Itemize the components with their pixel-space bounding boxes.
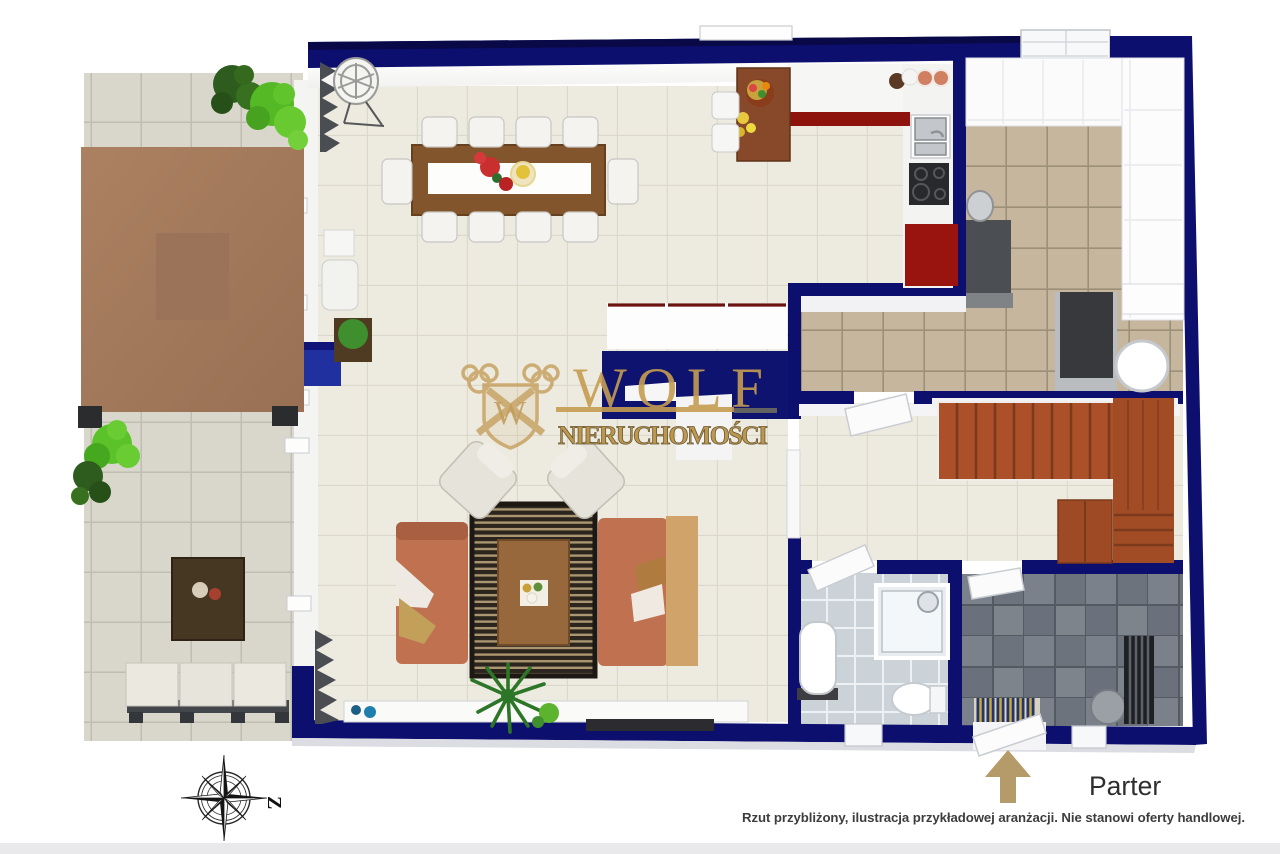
svg-text:Parter: Parter xyxy=(1089,771,1161,801)
svg-text:NIERUCHOMOŚCI: NIERUCHOMOŚCI xyxy=(558,421,768,450)
svg-text:Z: Z xyxy=(263,796,285,809)
svg-text:W: W xyxy=(494,395,527,432)
svg-text:Rzut przybliżony, ilustracja p: Rzut przybliżony, ilustracja przykładowe… xyxy=(742,810,1245,825)
